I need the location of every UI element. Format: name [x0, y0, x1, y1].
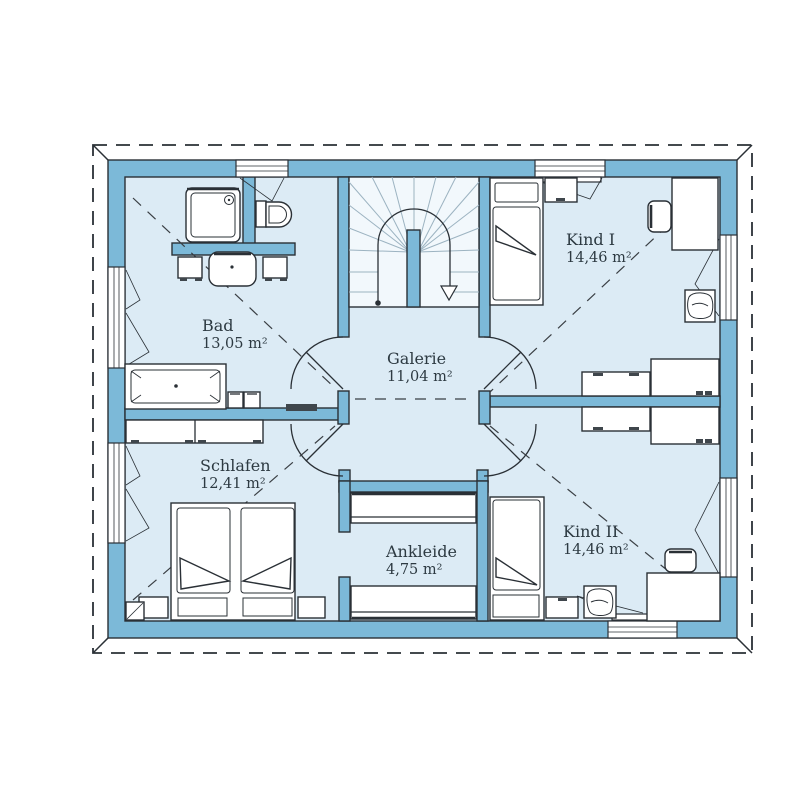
single-bed	[490, 178, 543, 305]
beanbag	[584, 586, 616, 618]
ankleide-wall-left-lower	[339, 577, 350, 621]
desk-chair	[648, 201, 671, 232]
bath-side-cabinets	[228, 392, 260, 408]
room-name-ankleide: Ankleide	[385, 542, 457, 561]
nightstand	[298, 597, 325, 618]
desk-chair	[665, 549, 696, 572]
handrail-end	[375, 300, 381, 306]
stairwell-wall-left	[338, 177, 349, 337]
single-bed	[490, 497, 544, 620]
room-name-galerie: Galerie	[387, 349, 446, 368]
wall-table	[582, 407, 650, 431]
room-area-galerie: 11,04 m²	[387, 369, 453, 385]
staircase	[349, 177, 479, 307]
wall-table	[582, 372, 650, 396]
room-label-galerie: Galerie 11,04 m²	[387, 349, 453, 385]
beanbag	[685, 290, 715, 322]
double-bed	[171, 503, 295, 620]
floor-plan: Bad 13,05 m² Galerie 11,04 m² Kind I 14,…	[0, 0, 800, 800]
ankleide-wall-top	[339, 481, 488, 492]
wall-cap-right	[479, 391, 490, 424]
room-area-schlafen: 12,41 m²	[200, 476, 266, 492]
wall-cap-left	[338, 391, 349, 424]
radiator	[286, 404, 317, 411]
washbasin	[209, 252, 256, 286]
ankleide-wall-left-upper	[339, 481, 350, 532]
room-area-ankleide: 4,75 m²	[386, 562, 442, 578]
room-name-kind1: Kind I	[566, 230, 615, 249]
desk	[647, 573, 720, 621]
nightstand	[546, 597, 578, 618]
chimney	[126, 602, 144, 620]
ankleide-wall-right	[477, 481, 488, 621]
bathtub	[125, 364, 226, 409]
room-area-kind1: 14,46 m²	[566, 250, 632, 266]
wardrobe	[651, 359, 719, 396]
room-area-kind2: 14,46 m²	[563, 542, 629, 558]
nightstand	[545, 178, 577, 202]
stair-newel-wall	[407, 230, 420, 307]
room-name-bad: Bad	[202, 316, 234, 335]
dressing-rail-top	[351, 493, 476, 523]
toilet	[256, 201, 292, 227]
room-label-schlafen: Schlafen 12,41 m²	[200, 456, 271, 492]
room-name-kind2: Kind II	[563, 522, 618, 541]
sideboard	[126, 420, 263, 443]
stairwell-wall-right	[479, 177, 490, 337]
room-area-bad: 13,05 m²	[202, 336, 268, 352]
shower	[186, 188, 240, 242]
wall-kind1-kind2	[490, 396, 720, 407]
dressing-rail-bottom	[351, 586, 476, 619]
wardrobe	[651, 407, 719, 444]
desk	[672, 178, 718, 250]
room-name-schlafen: Schlafen	[200, 456, 271, 475]
